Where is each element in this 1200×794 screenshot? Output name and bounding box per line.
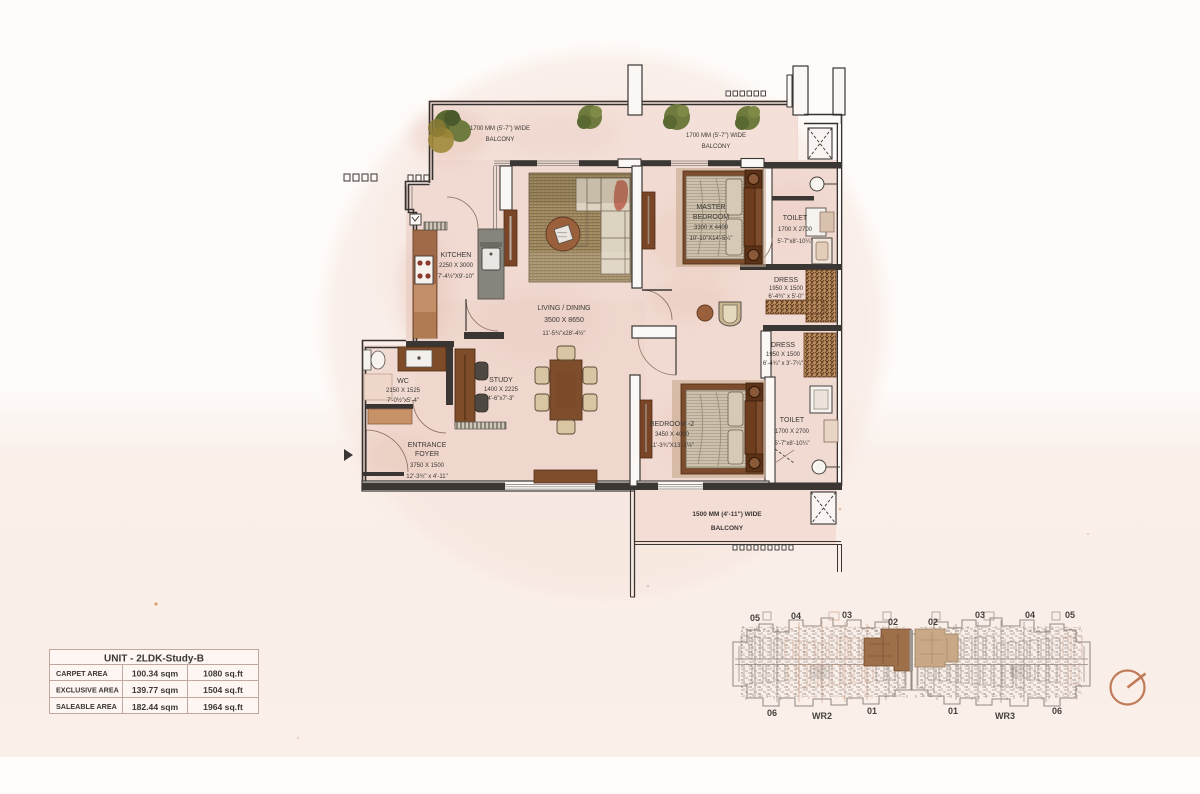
svg-text:7'-4½"X9'-10": 7'-4½"X9'-10": [438, 273, 474, 280]
svg-text:1950 X 1500: 1950 X 1500: [766, 352, 801, 358]
svg-text:CARPET AREA: CARPET AREA: [56, 669, 108, 678]
svg-text:MASTER: MASTER: [696, 204, 725, 211]
svg-text:1964 sq.ft: 1964 sq.ft: [203, 702, 243, 712]
svg-text:04: 04: [1025, 610, 1035, 620]
svg-text:KITCHEN: KITCHEN: [441, 252, 472, 259]
svg-text:WR3: WR3: [995, 711, 1015, 721]
svg-text:01: 01: [948, 706, 958, 716]
svg-text:BALCONY: BALCONY: [702, 144, 731, 150]
svg-text:1700 MM (5'-7") WIDE: 1700 MM (5'-7") WIDE: [470, 126, 530, 132]
svg-text:LIVING / DINING: LIVING / DINING: [537, 305, 590, 312]
svg-text:05: 05: [1065, 610, 1075, 620]
svg-text:WR2: WR2: [812, 711, 832, 721]
svg-text:WC: WC: [397, 378, 409, 385]
svg-text:11'-5¾"x28'-4½": 11'-5¾"x28'-4½": [542, 330, 585, 337]
svg-text:5'-7"x8'-10¼": 5'-7"x8'-10¼": [774, 441, 809, 447]
svg-text:1700 MM (5'-7") WIDE: 1700 MM (5'-7") WIDE: [686, 133, 746, 139]
svg-text:182.44 sqm: 182.44 sqm: [132, 702, 179, 712]
svg-text:BALCONY: BALCONY: [486, 137, 515, 143]
svg-text:03: 03: [842, 610, 852, 620]
svg-text:6'-4¾" x 5'-0": 6'-4¾" x 5'-0": [768, 294, 803, 300]
svg-text:3450 X 4000: 3450 X 4000: [655, 432, 690, 438]
svg-text:02: 02: [928, 617, 938, 627]
svg-text:06: 06: [767, 708, 777, 718]
svg-text:BALCONY: BALCONY: [711, 525, 744, 532]
svg-text:02: 02: [888, 617, 898, 627]
svg-text:DRESS: DRESS: [774, 277, 798, 284]
svg-text:1700 X 2700: 1700 X 2700: [775, 429, 810, 435]
svg-text:3500 X 8650: 3500 X 8650: [544, 317, 584, 324]
svg-text:TOILET: TOILET: [780, 417, 805, 424]
svg-text:BEDROOM -2: BEDROOM -2: [650, 421, 694, 428]
svg-text:6'-4¾" x 3'-7¼": 6'-4¾" x 3'-7¼": [763, 361, 803, 367]
svg-text:1400 X 2225: 1400 X 2225: [484, 387, 519, 393]
svg-text:SALEABLE AREA: SALEABLE AREA: [56, 702, 117, 711]
svg-text:7'-0½"x5'-4": 7'-0½"x5'-4": [387, 397, 419, 404]
svg-text:100.34 sqm: 100.34 sqm: [132, 669, 179, 679]
svg-text:ENTRANCE: ENTRANCE: [408, 442, 447, 449]
svg-text:04: 04: [791, 611, 801, 621]
svg-text:1500 MM (4'-11") WIDE: 1500 MM (4'-11") WIDE: [692, 511, 762, 518]
svg-text:2150 X 1525: 2150 X 1525: [386, 388, 421, 394]
svg-text:01: 01: [867, 706, 877, 716]
svg-text:BEDROOM: BEDROOM: [693, 214, 729, 221]
svg-text:1950 X 1500: 1950 X 1500: [769, 286, 804, 292]
svg-text:5'-7"x8'-10¼": 5'-7"x8'-10¼": [777, 239, 812, 245]
svg-text:03: 03: [975, 610, 985, 620]
svg-text:STUDY: STUDY: [489, 377, 513, 384]
svg-text:DRESS: DRESS: [771, 342, 795, 349]
svg-text:EXCLUSIVE AREA: EXCLUSIVE AREA: [56, 686, 119, 695]
svg-text:1504 sq.ft: 1504 sq.ft: [203, 685, 243, 695]
svg-text:3300 X 4400: 3300 X 4400: [694, 225, 729, 231]
svg-text:05: 05: [750, 613, 760, 623]
svg-text:TOILET: TOILET: [783, 215, 808, 222]
svg-text:1080 sq.ft: 1080 sq.ft: [203, 669, 243, 679]
svg-text:FOYER: FOYER: [415, 451, 439, 458]
svg-text:06: 06: [1052, 706, 1062, 716]
svg-text:3750 X 1500: 3750 X 1500: [410, 463, 445, 469]
svg-text:139.77 sqm: 139.77 sqm: [132, 685, 179, 695]
svg-text:UNIT - 2LDK-Study-B: UNIT - 2LDK-Study-B: [104, 654, 204, 665]
svg-text:11'-3¾"X13'-1½": 11'-3¾"X13'-1½": [650, 442, 694, 449]
svg-text:2250 X 3000: 2250 X 3000: [439, 263, 474, 269]
svg-text:1700 X 2700: 1700 X 2700: [778, 227, 813, 233]
svg-text:12'-3¾" x 4'-11": 12'-3¾" x 4'-11": [406, 474, 447, 480]
svg-text:4'-6"x7'-3": 4'-6"x7'-3": [488, 396, 515, 402]
svg-text:10'-10"X14'-5¼": 10'-10"X14'-5¼": [690, 236, 733, 242]
